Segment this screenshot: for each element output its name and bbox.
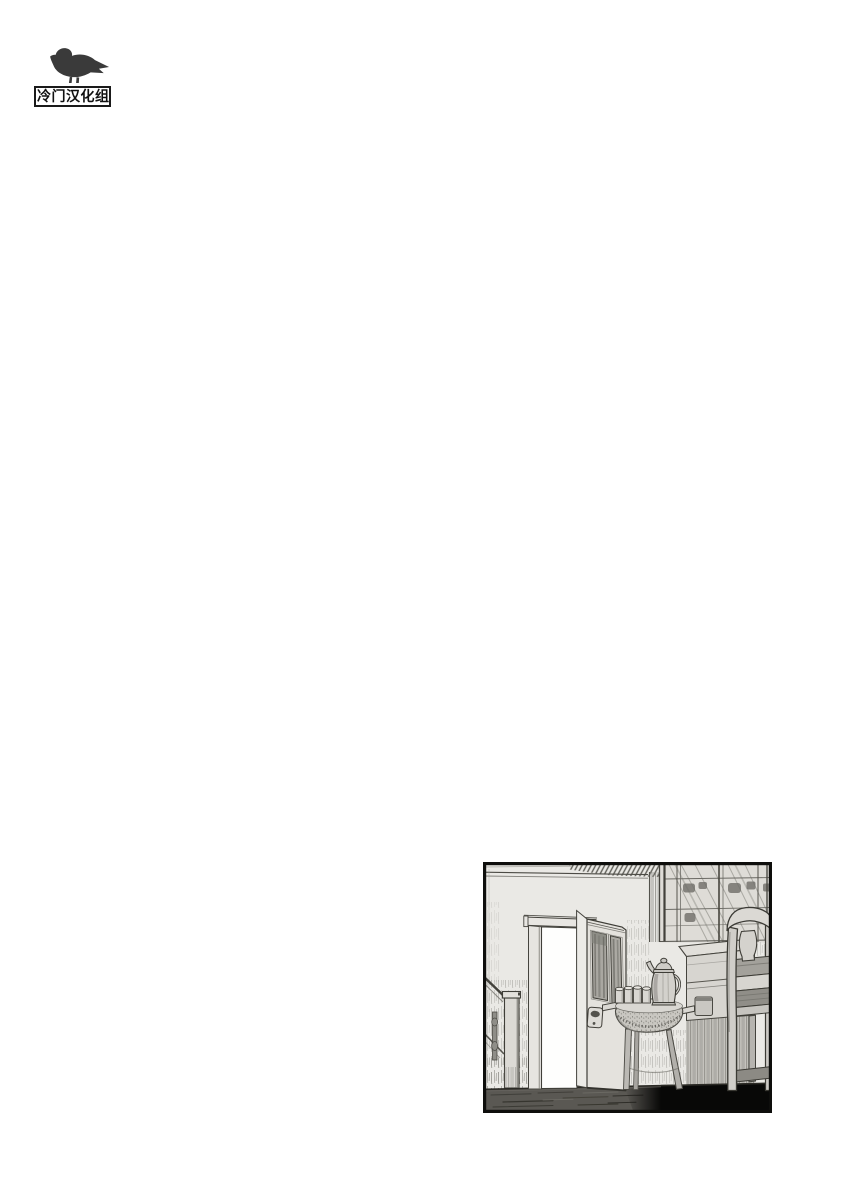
pigeon-legs (69, 77, 79, 83)
doorway-opening (542, 927, 578, 1089)
door-lock-plate (587, 1007, 603, 1028)
door-assembly (524, 911, 626, 1091)
newel-post (503, 992, 521, 1089)
scanlation-group-name: 冷门汉化组 (37, 88, 110, 104)
door-edge (577, 911, 587, 1088)
scanlation-watermark: 冷门汉化组 (34, 46, 114, 107)
pigeon-silhouette (50, 48, 109, 77)
door-panel-left (590, 930, 609, 1002)
wall-corner (650, 865, 660, 943)
manga-page: 冷门汉化组 (0, 0, 846, 1200)
chair-splat (739, 931, 756, 962)
scanlation-group-name-box: 冷门汉化组 (34, 86, 111, 107)
chair (727, 907, 772, 1090)
baluster (492, 1012, 498, 1060)
pigeon-logo-icon (47, 46, 111, 86)
manga-panel (483, 862, 772, 1113)
